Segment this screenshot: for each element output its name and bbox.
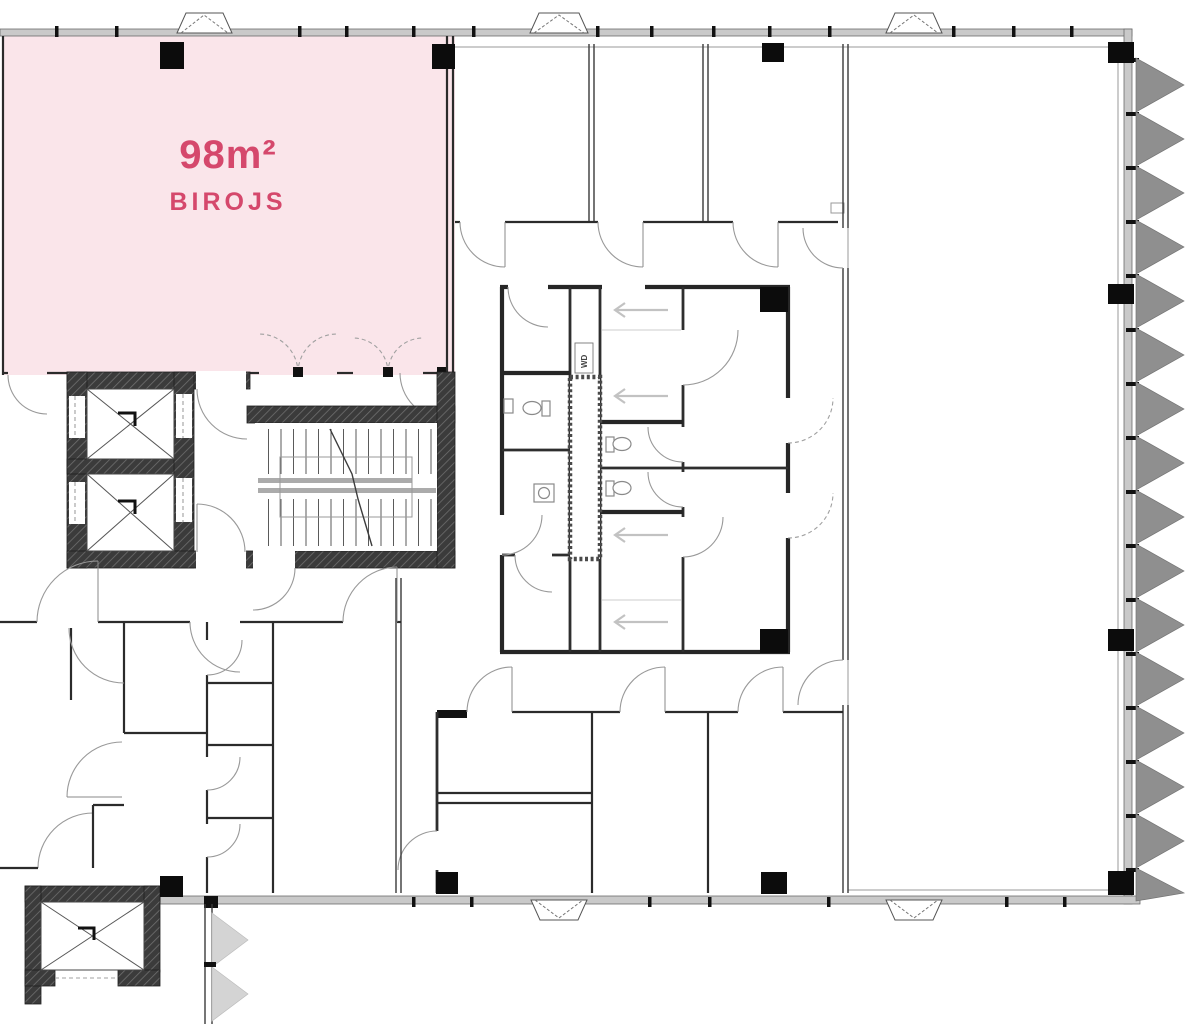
door-symbol xyxy=(831,203,844,213)
sink-icon xyxy=(504,399,513,413)
unit-name-label: BIROJS xyxy=(169,188,286,216)
corridor-arrows xyxy=(615,303,668,629)
bottom-room-doors xyxy=(467,667,783,712)
top-rooms xyxy=(455,44,844,267)
office-unit-98[interactable]: 98m² BIROJS xyxy=(3,36,455,375)
toilet-icon xyxy=(606,481,631,496)
unit-area-label: 98m² xyxy=(179,133,276,177)
east-corridor-wall xyxy=(798,44,848,893)
ventilation-shaft xyxy=(570,377,600,559)
janitor-sink-icon xyxy=(534,484,554,502)
right-exterior-wall xyxy=(1124,29,1132,904)
washer-dryer-box: WD xyxy=(575,343,593,373)
toilet-icon xyxy=(606,437,631,452)
lower-left-wing xyxy=(0,561,401,908)
east-openspace-sill xyxy=(848,47,1118,890)
service-elevator xyxy=(25,886,160,1004)
elevator-shaft-1 xyxy=(87,389,174,459)
floor-plan-canvas: 98m² BIROJS xyxy=(0,0,1200,1024)
facade-sawtooth-right xyxy=(1136,58,1184,901)
core-doors xyxy=(502,287,833,592)
washer-dryer-label: WD xyxy=(580,354,589,368)
wall-notch xyxy=(437,710,467,718)
floor-plan: 98m² BIROJS xyxy=(0,0,1200,1024)
toilet-icon xyxy=(523,401,550,416)
top-room-doors xyxy=(460,222,778,267)
wing-doors xyxy=(38,628,242,868)
facade-sawtooth-lower-left xyxy=(204,904,248,1024)
central-wc-core: WD xyxy=(500,287,833,652)
stairwell xyxy=(255,423,437,551)
elevator-shaft-2 xyxy=(87,474,174,551)
